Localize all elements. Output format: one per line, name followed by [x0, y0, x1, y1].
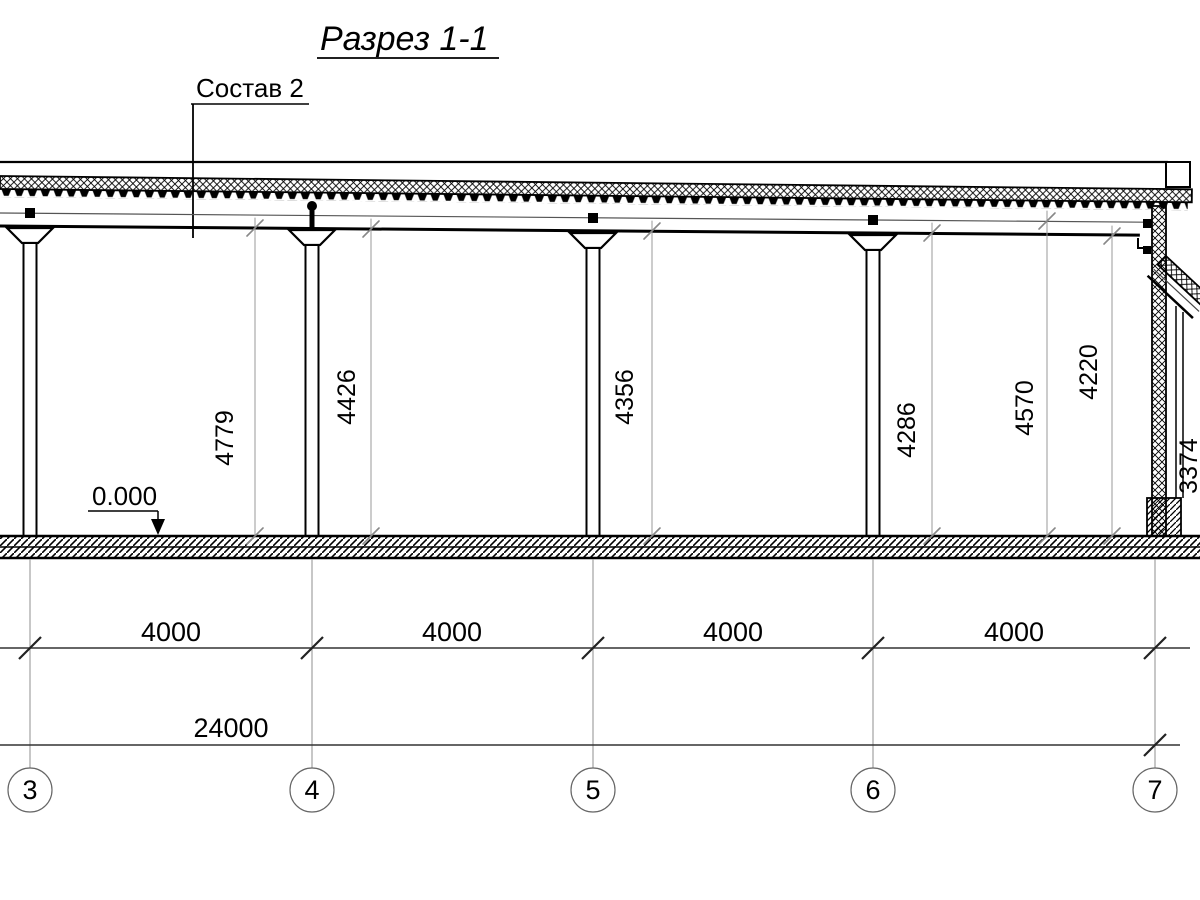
axis-bubble-label: 4 [304, 775, 319, 805]
column-connection-node [25, 208, 35, 218]
bay-dim-label: 4000 [141, 617, 201, 647]
height-dim-label: 4426 [333, 369, 361, 425]
column-shaft [867, 250, 880, 536]
bay-dim-label: 4000 [984, 617, 1044, 647]
column-shaft [306, 245, 319, 536]
column-shaft [587, 248, 600, 536]
column-grid-6 [850, 215, 896, 536]
bottom-dimensions: 4000 4000 4000 4000 24000 [0, 559, 1190, 768]
composition-label: Состав 2 [196, 73, 304, 103]
floor-hatch-upper [0, 536, 1200, 547]
axis-bubble-label: 5 [585, 775, 600, 805]
axis-bubble-label: 6 [865, 775, 880, 805]
axis-bubble: 4 [290, 768, 334, 812]
beam-bearing-plate [1143, 246, 1151, 254]
drawing-page: Разрез 1-1 Состав 2 [0, 0, 1200, 900]
axis-bubble: 6 [851, 768, 895, 812]
parapet-block [1166, 162, 1190, 187]
roof-assembly [0, 176, 1192, 210]
height-dim-label: 4570 [1011, 380, 1039, 436]
height-dim-label: 4286 [893, 402, 921, 458]
column-grid-5 [570, 213, 616, 536]
axis-bubble: 5 [571, 768, 615, 812]
height-dimensions: 4779 4426 4356 4286 4570 4220 3374 [211, 211, 1200, 544]
total-dim-label: 24000 [193, 713, 268, 743]
height-dim-label-partial: 3374 [1175, 438, 1200, 494]
column-grid-3 [7, 208, 53, 536]
axis-bubble-label: 7 [1147, 775, 1162, 805]
floor-hatch-lower [0, 547, 1200, 558]
column-capital [7, 228, 53, 243]
column-shaft [24, 243, 37, 536]
section-drawing: Разрез 1-1 Состав 2 [0, 0, 1200, 900]
end-wall-panel [1152, 206, 1166, 536]
axis-bubble: 7 [1133, 768, 1177, 812]
wall-connection-node [1143, 219, 1152, 228]
column-grid-4 [289, 201, 335, 536]
section-title: Разрез 1-1 [320, 20, 488, 58]
level-mark: 0.000 [88, 481, 165, 535]
axis-bubble-label: 3 [22, 775, 37, 805]
height-dim-label: 4356 [611, 369, 639, 425]
bay-dim-label: 4000 [422, 617, 482, 647]
column-capital [850, 235, 896, 250]
grid-axis-bubbles: 3 4 5 6 7 [8, 768, 1177, 812]
column-capital [289, 230, 335, 245]
column-capital [570, 233, 616, 248]
height-dim-label: 4220 [1075, 344, 1103, 400]
column-connection-node [868, 215, 878, 225]
height-dim-label: 4779 [211, 410, 239, 466]
bay-dim-label: 4000 [703, 617, 763, 647]
floor-slab [0, 536, 1200, 558]
level-mark-label: 0.000 [92, 481, 157, 511]
column-bolt-shaft [310, 206, 315, 231]
column-connection-node [588, 213, 598, 223]
roof-beam-top-line [0, 213, 1152, 222]
level-arrow-icon [151, 519, 165, 535]
axis-bubble: 3 [8, 768, 52, 812]
